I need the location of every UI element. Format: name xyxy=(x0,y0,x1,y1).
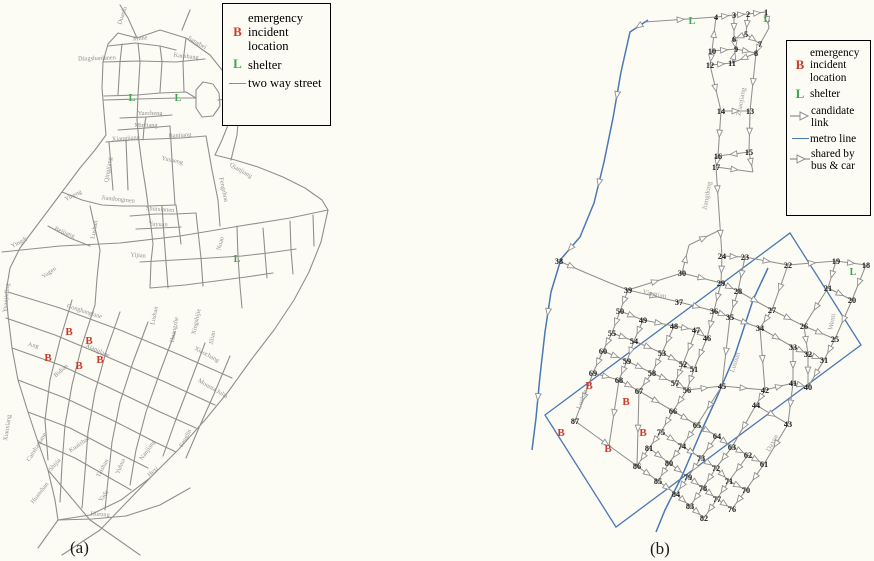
incident-marker: B xyxy=(44,352,52,364)
street-segment xyxy=(8,292,232,378)
shelter-letter-symbol: L xyxy=(796,86,805,101)
street-segment xyxy=(108,43,176,50)
node-number: 39 xyxy=(624,286,632,295)
node-number: 77 xyxy=(713,495,721,504)
link-arrow xyxy=(627,312,636,320)
node-number: 6 xyxy=(732,35,736,44)
link-arrow xyxy=(676,396,685,405)
node-number: 50 xyxy=(616,307,624,316)
node-number: 35 xyxy=(726,313,734,322)
link-arrow xyxy=(725,283,734,291)
link-arrow xyxy=(759,355,765,362)
node-number: 21 xyxy=(824,284,832,293)
node-number: 37 xyxy=(675,298,683,307)
street-segment xyxy=(182,10,190,30)
node-number: 26 xyxy=(800,322,808,331)
street-name-label: Yuanjialing xyxy=(2,282,12,312)
link-arrow xyxy=(706,504,715,513)
legend-symbol: L xyxy=(790,87,810,101)
node-number: 16 xyxy=(714,152,722,161)
node-number: 76 xyxy=(728,505,736,514)
incident-marker: B xyxy=(75,360,83,372)
link-arrow xyxy=(707,321,714,329)
node-number: 24 xyxy=(718,252,726,261)
node-number: 69 xyxy=(589,369,597,378)
node-number: 34 xyxy=(756,324,764,333)
link-arrow xyxy=(731,24,737,31)
link-arrow xyxy=(705,474,714,483)
street-name-label: Nuan xyxy=(215,235,226,251)
street-name-label: Yada xyxy=(97,489,110,504)
link-arrow xyxy=(595,179,602,187)
legend-label: candidate link xyxy=(811,105,867,130)
link-arrow xyxy=(664,335,672,344)
node-number: 79 xyxy=(684,473,692,482)
node-number: 59 xyxy=(623,357,631,366)
link-arrow xyxy=(714,186,720,193)
caption-panel-b: (b) xyxy=(650,539,670,559)
node-number: 17 xyxy=(712,163,720,172)
node-number: 53 xyxy=(658,349,666,358)
link-arrow xyxy=(815,329,824,337)
node-number: 28 xyxy=(734,287,742,296)
street-name-label: Ang xyxy=(27,341,40,350)
link-arrow xyxy=(635,363,644,371)
street-name-label: Yugen xyxy=(41,265,59,280)
node-number: 46 xyxy=(703,334,711,343)
shelter-marker: L xyxy=(689,16,696,27)
link-arrow xyxy=(652,397,661,405)
legend-panel-a: Bemergency incident locationLsheltertwo … xyxy=(222,3,331,126)
link-arrow xyxy=(663,417,671,426)
link-arrow xyxy=(545,308,552,316)
node-number: 74 xyxy=(678,442,686,451)
node-number: 43 xyxy=(784,420,792,429)
link-arrow xyxy=(699,234,708,242)
node-number: 67 xyxy=(635,387,643,396)
link-arrow xyxy=(734,464,743,473)
street-name-label: Hexi xyxy=(146,465,160,479)
street-name-label: Minjiang xyxy=(134,122,158,129)
link-arrow xyxy=(619,333,627,341)
legend-item: candidate link xyxy=(790,105,867,130)
link-arrow xyxy=(772,333,781,341)
street-name-label: Huanshan xyxy=(29,480,51,505)
street-segment xyxy=(45,300,72,460)
node-number: 81 xyxy=(645,444,653,453)
link-arrow xyxy=(776,283,784,291)
street-segment xyxy=(196,213,203,286)
legend-item: Lshelter xyxy=(227,57,326,72)
street-name-label: Lushan xyxy=(728,351,742,374)
legend-symbol xyxy=(790,110,811,124)
link-arrow xyxy=(614,91,621,99)
maps-canvas: DuanluXinheJiangbeiDingshanlanenKaoshang… xyxy=(0,0,874,561)
node-number: 87 xyxy=(571,417,579,426)
street-name-label: Shijia xyxy=(47,457,62,473)
link-arrow xyxy=(805,367,811,374)
link-arrow xyxy=(790,362,796,369)
link-arrow xyxy=(675,369,683,378)
node-number: 78 xyxy=(699,484,707,493)
node-number: 8 xyxy=(754,49,758,58)
legend-label: emergency incident location xyxy=(810,47,867,84)
link-arrow xyxy=(685,431,694,440)
legend-panel-b: Bemergency incident locationLsheltercand… xyxy=(786,40,871,216)
link-arrow xyxy=(711,30,717,38)
street-name-label: Canshanlane xyxy=(25,432,48,463)
node-number: 29 xyxy=(717,279,725,288)
node-number: 20 xyxy=(848,296,856,305)
street-segment xyxy=(150,273,273,288)
node-number: 73 xyxy=(697,454,705,463)
link-arrow xyxy=(612,318,620,326)
node-number: 38 xyxy=(555,257,563,266)
street-segment xyxy=(137,43,140,120)
node-number: 3 xyxy=(732,11,736,20)
node-number: 65 xyxy=(693,421,701,430)
link-arrow xyxy=(634,22,643,31)
node-number: 7 xyxy=(758,40,762,49)
link-arrow xyxy=(698,274,706,281)
node-number: 23 xyxy=(741,253,749,262)
link-arrow xyxy=(737,11,744,17)
incident-letter-symbol: B xyxy=(233,24,242,39)
node-number: 32 xyxy=(804,350,812,359)
link-arrow xyxy=(651,278,659,285)
node-number: 5 xyxy=(744,30,748,39)
legend-label: emergency incident location xyxy=(248,11,326,53)
node-number: 2 xyxy=(746,10,750,19)
street-name-label: Jiandongmen xyxy=(101,194,136,205)
street-name-label: Yingtian xyxy=(642,288,668,301)
node-number: 83 xyxy=(686,502,694,511)
link-arrow xyxy=(723,348,729,356)
node-number: 12 xyxy=(706,61,714,70)
legend-item: metro line xyxy=(790,133,867,145)
street-segment xyxy=(6,318,215,405)
street-segment xyxy=(160,46,162,92)
node-number: 30 xyxy=(678,269,686,278)
legend-item: Bemergency incident location xyxy=(790,47,867,84)
street-name-label: Xinhe xyxy=(132,34,148,43)
line-symbol xyxy=(229,83,246,84)
street-segment xyxy=(118,44,122,95)
candidate-link-arrow-symbol xyxy=(790,110,811,121)
link-arrow xyxy=(733,481,742,489)
legend-item: two way street xyxy=(227,76,326,90)
street-name-label: Yuecheng xyxy=(138,110,164,117)
link-arrow xyxy=(731,166,739,172)
street-name-label: Yingdi xyxy=(10,235,29,249)
node-number: 48 xyxy=(670,322,678,331)
street-name-label: Shuixianen xyxy=(146,205,176,214)
node-number: 71 xyxy=(725,477,733,486)
street-name-label: Hurong xyxy=(90,510,111,518)
link-arrow xyxy=(697,349,705,358)
incident-marker: B xyxy=(622,396,630,408)
street-segment xyxy=(162,206,168,288)
link-arrow xyxy=(619,366,627,375)
node-number: 9 xyxy=(734,45,738,54)
link-arrow xyxy=(643,469,652,478)
street-name-label: Yuyuan xyxy=(148,221,168,229)
legend-symbol: B xyxy=(227,25,248,40)
link-arrow xyxy=(655,320,663,327)
link-arrow xyxy=(535,393,541,400)
link-arrow xyxy=(740,54,749,62)
link-arrow xyxy=(855,278,863,287)
shelter-letter-symbol: L xyxy=(233,56,242,71)
candidate-link xyxy=(716,167,722,256)
street-name-label: Bidian xyxy=(52,362,70,379)
street-segment xyxy=(95,250,100,305)
street-segment xyxy=(186,356,230,458)
legend-item: shared by bus & car xyxy=(790,148,867,173)
line-symbol xyxy=(792,138,809,139)
street-segment xyxy=(137,120,148,205)
street-name-label: Yijian xyxy=(130,251,147,259)
link-arrow xyxy=(720,47,727,53)
link-arrow xyxy=(730,300,737,308)
link-arrow xyxy=(750,78,756,86)
street-name-label: Lushan xyxy=(89,219,99,239)
node-number: 44 xyxy=(752,401,760,410)
link-arrow xyxy=(828,270,835,278)
incident-letter-symbol: B xyxy=(796,57,805,72)
link-arrow xyxy=(644,343,653,351)
evacuation-network-figure: DuanluXinheJiangbeiDingshanlanenKaoshang… xyxy=(0,0,874,561)
link-arrow xyxy=(717,61,724,67)
node-number: 11 xyxy=(728,59,736,68)
legend-label: shelter xyxy=(810,88,867,100)
street-name-label: Kaoshang xyxy=(173,52,200,62)
link-arrow xyxy=(653,359,661,368)
link-arrow xyxy=(747,128,753,135)
node-number: 22 xyxy=(784,261,792,270)
node-number: 70 xyxy=(742,486,750,495)
link-arrow xyxy=(721,13,729,19)
link-arrow xyxy=(668,354,677,362)
link-arrow xyxy=(716,130,722,137)
legend-item: Lshelter xyxy=(790,87,867,101)
node-number: 56 xyxy=(683,386,691,395)
link-arrow xyxy=(655,451,664,460)
node-number: 49 xyxy=(639,316,647,325)
incident-marker: B xyxy=(604,443,612,455)
link-arrow xyxy=(620,296,628,305)
shelter-marker: L xyxy=(129,93,136,104)
node-number: 47 xyxy=(692,326,700,335)
link-arrow xyxy=(825,345,833,354)
node-number: 10 xyxy=(708,47,716,56)
link-arrow xyxy=(682,255,689,263)
link-arrow xyxy=(748,158,755,166)
node-number: 42 xyxy=(761,386,769,395)
legend-symbol xyxy=(227,76,248,90)
link-arrow xyxy=(611,409,618,417)
link-arrow xyxy=(719,486,728,495)
street-name-label: Jilian xyxy=(208,330,217,345)
link-arrow xyxy=(762,315,771,324)
link-arrow xyxy=(693,303,701,310)
node-number: 72 xyxy=(712,464,720,473)
street-name-label: Huangzhe xyxy=(169,316,180,343)
link-arrow xyxy=(674,466,683,475)
node-number: 40 xyxy=(804,383,812,392)
link-arrow xyxy=(784,314,793,322)
link-arrow xyxy=(812,303,820,312)
link-arrow xyxy=(730,254,737,260)
street-segment xyxy=(104,98,196,100)
shelter-marker: L xyxy=(764,14,771,25)
shelter-marker: L xyxy=(234,254,241,265)
node-number: 36 xyxy=(710,307,718,316)
legend-symbol xyxy=(790,153,811,167)
street-name-label: Xiaoxiang xyxy=(2,413,13,441)
link-arrow xyxy=(639,453,648,462)
link-arrow xyxy=(744,20,750,28)
shared-bus-car-arrow-symbol xyxy=(790,153,811,164)
link-arrow xyxy=(602,373,610,380)
legend-symbol: L xyxy=(227,57,248,72)
street-segment xyxy=(126,140,128,190)
legend-label: metro line xyxy=(810,133,867,145)
incident-marker: B xyxy=(65,326,73,338)
street-name-label: Nanjiang xyxy=(138,438,157,462)
link-arrow xyxy=(749,35,758,44)
street-name-label: Yiheng xyxy=(64,188,84,203)
caption-panel-a: (a) xyxy=(70,538,89,558)
link-arrow xyxy=(681,325,689,332)
street-name-label: Xiaochang xyxy=(193,345,221,364)
street-segment xyxy=(176,205,181,244)
node-number: 54 xyxy=(630,337,638,346)
street-name-label: Fengzhou xyxy=(217,177,229,204)
link-arrow xyxy=(753,10,761,16)
incident-marker: B xyxy=(585,380,593,392)
link-arrow xyxy=(705,443,714,452)
node-number: 31 xyxy=(820,356,828,365)
node-number: 52 xyxy=(679,360,687,369)
link-arrow xyxy=(701,385,709,391)
shelter-marker: L xyxy=(175,93,182,104)
street-name-label: Beijiang xyxy=(53,225,76,240)
link-arrow xyxy=(635,326,643,335)
node-number: 57 xyxy=(671,379,679,388)
link-arrow xyxy=(719,266,725,273)
incident-marker: B xyxy=(557,427,565,439)
street-name-label: Wenti xyxy=(827,313,838,331)
node-number: 86 xyxy=(633,462,641,471)
node-number: 82 xyxy=(700,514,708,523)
street-segment xyxy=(237,226,242,308)
link-arrow xyxy=(740,385,747,391)
link-arrow xyxy=(763,258,771,265)
node-number: 27 xyxy=(768,306,776,315)
node-number: 45 xyxy=(718,382,726,391)
street-segment xyxy=(105,322,148,510)
link-arrow xyxy=(730,151,738,157)
street-segment xyxy=(290,221,293,274)
node-number: 51 xyxy=(690,365,698,374)
street-segment xyxy=(313,215,314,246)
street-name-label: Jiangdong xyxy=(701,180,714,210)
node-number: 33 xyxy=(789,343,797,352)
link-arrow xyxy=(567,263,576,271)
node-number: 64 xyxy=(713,432,721,441)
link-arrow xyxy=(677,16,684,22)
node-number: 60 xyxy=(599,347,607,356)
legend-symbol: B xyxy=(790,58,810,72)
link-arrow xyxy=(787,400,793,408)
link-arrow xyxy=(808,260,815,266)
street-name-label: Lushan xyxy=(149,305,160,325)
street-segment xyxy=(38,520,58,548)
street-segment xyxy=(58,488,190,520)
link-arrow xyxy=(692,493,701,502)
legend-item: Bemergency incident location xyxy=(227,11,326,53)
legend-label: shared by bus & car xyxy=(811,148,867,173)
node-number: 63 xyxy=(728,443,736,452)
link-arrow xyxy=(775,383,783,390)
node-number: 41 xyxy=(789,379,797,388)
link-arrow xyxy=(751,473,760,482)
node-number: 75 xyxy=(657,428,665,437)
link-arrow xyxy=(712,84,719,92)
node-number: 66 xyxy=(669,407,677,416)
shelter-marker: L xyxy=(850,267,857,278)
link-arrow xyxy=(847,260,855,266)
node-number: 13 xyxy=(746,107,754,116)
link-arrow xyxy=(703,426,712,434)
link-arrow xyxy=(803,336,810,344)
legend-label: shelter xyxy=(248,58,326,72)
incident-marker: B xyxy=(85,335,93,347)
node-number: 62 xyxy=(744,451,752,460)
node-number: 55 xyxy=(608,329,616,338)
legend-symbol xyxy=(790,133,810,145)
node-number: 61 xyxy=(760,460,768,469)
node-number: 85 xyxy=(654,477,662,486)
street-name-label: Xingshijie xyxy=(190,308,202,335)
street-name-label: Yuhua xyxy=(114,457,127,475)
node-number: 80 xyxy=(665,459,673,468)
link-arrow xyxy=(714,293,721,301)
node-number: 4 xyxy=(714,13,718,22)
link-arrow xyxy=(659,468,667,477)
link-arrow xyxy=(611,352,620,360)
street-segment xyxy=(102,33,137,135)
link-arrow xyxy=(603,338,611,347)
link-arrow xyxy=(686,343,694,352)
link-arrow xyxy=(681,414,690,422)
street-name-label: Gonghanglane xyxy=(66,303,103,321)
link-arrow xyxy=(735,495,744,504)
node-number: 58 xyxy=(648,369,656,378)
street-segment xyxy=(183,38,186,92)
street-segment xyxy=(196,82,220,117)
street-name-label: Jiangbei xyxy=(186,34,208,51)
street-name-label: Xiangjiang xyxy=(112,134,141,143)
link-arrow xyxy=(836,290,845,298)
incident-marker: B xyxy=(96,354,104,366)
street-name-label: Dingshanlanen xyxy=(78,54,117,62)
link-arrow xyxy=(742,48,750,55)
node-number: 68 xyxy=(615,376,623,385)
node-number: 25 xyxy=(831,335,839,344)
node-number: 84 xyxy=(672,490,680,499)
